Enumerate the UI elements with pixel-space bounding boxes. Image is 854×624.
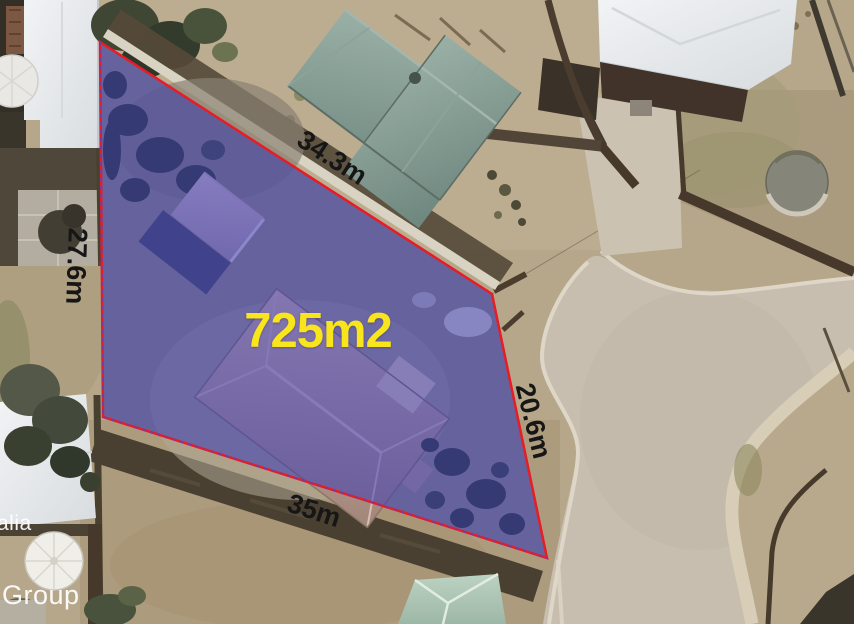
trampoline [25,532,83,590]
white-roof-building-north-west [0,0,108,266]
water-tank [766,151,828,214]
chimney [409,72,421,84]
aerial-photo [0,0,854,624]
property-map-view: 725m2 34.3m 27.6m 20.6m 35m alia Group [0,0,854,624]
